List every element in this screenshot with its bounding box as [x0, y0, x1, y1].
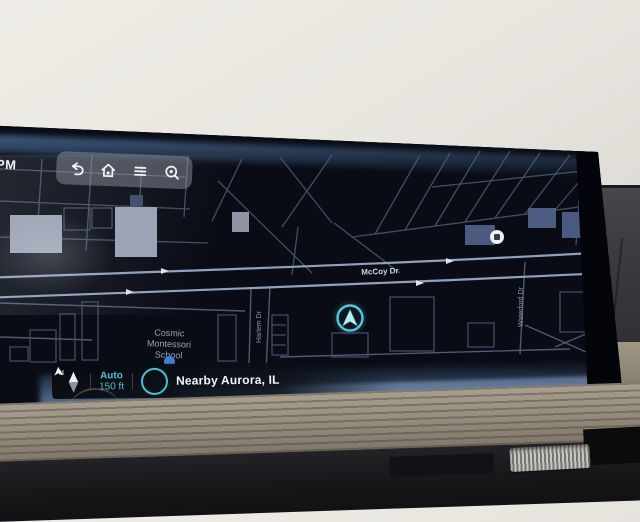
infotainment-screen[interactable]: McCoy Dr Harlem Dr Waterford Dr PM	[0, 125, 640, 425]
street-label-harlem: Harlem Dr	[256, 310, 263, 343]
menu-button[interactable]	[128, 158, 153, 183]
car-dashboard-scene: { "infotainment": { "clock_partial": "PM…	[0, 0, 640, 480]
home-button[interactable]	[96, 157, 121, 182]
zoom-mode-label: Auto	[100, 370, 123, 381]
home-icon	[99, 160, 118, 179]
map-toolbar	[56, 151, 193, 189]
current-location-marker[interactable]	[333, 301, 367, 335]
back-button[interactable]	[64, 156, 89, 181]
dashboard-recess	[390, 453, 495, 477]
search-button[interactable]	[160, 160, 185, 185]
current-location-label: Nearby Aurora, IL	[176, 373, 280, 388]
air-vent-slats[interactable]	[509, 444, 590, 472]
street-label-waterford: Waterford Dr	[518, 286, 525, 326]
compass-needle-icon	[68, 372, 79, 393]
search-icon	[163, 163, 182, 182]
clock-text: PM	[0, 157, 17, 173]
navigation-arrow-icon	[52, 365, 65, 378]
divider	[132, 373, 133, 389]
back-arrow-icon	[67, 159, 86, 178]
street-label-mccoy: McCoy Dr	[361, 266, 399, 277]
recenter-button[interactable]	[141, 367, 168, 394]
hamburger-menu-icon	[131, 162, 150, 181]
air-vent-opening	[583, 427, 640, 466]
poi-marker[interactable]	[490, 230, 504, 244]
